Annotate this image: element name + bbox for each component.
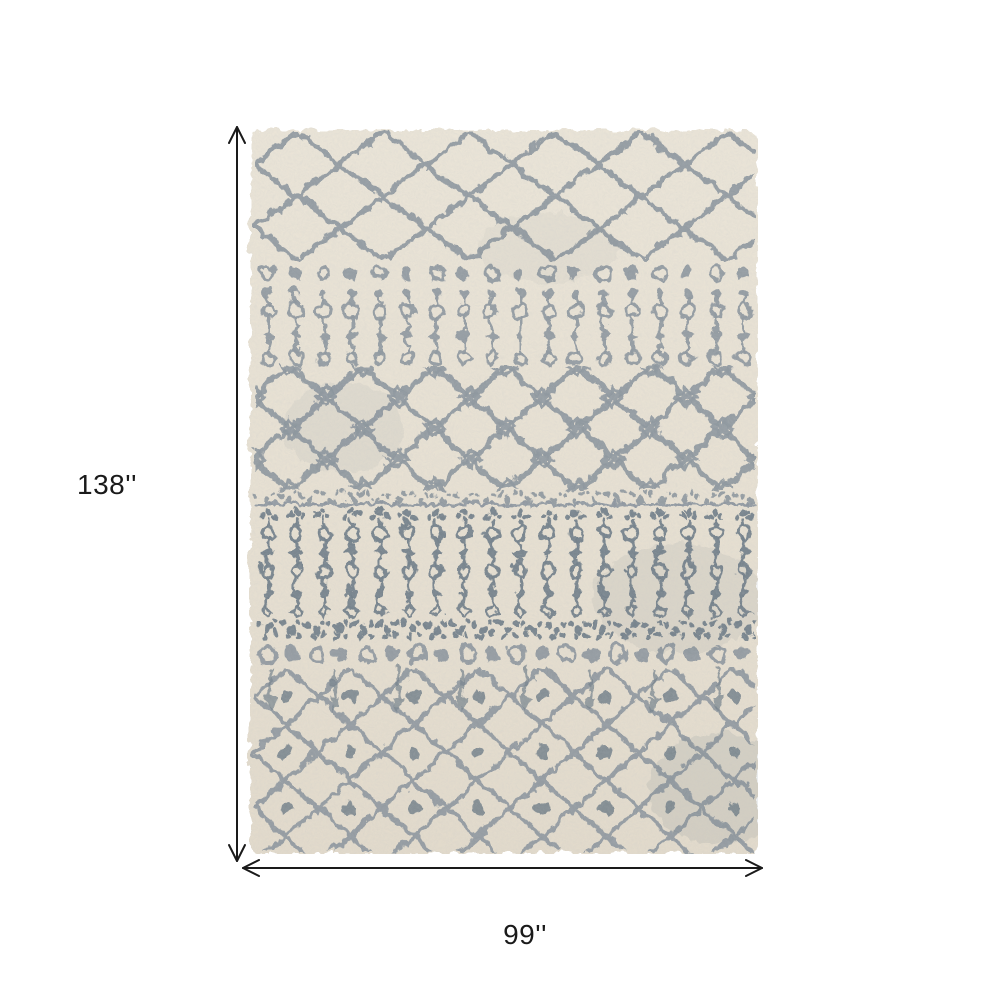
product-dimension-canvas: 138'' 99'' (0, 0, 1000, 1000)
rug-product-image (246, 126, 758, 854)
width-dimension-arrow-icon (234, 854, 778, 884)
rug-artwork-group (248, 128, 758, 852)
width-dimension-label: 99'' (480, 918, 570, 952)
shag-texture-overlay (248, 128, 756, 852)
height-dimension-arrow-icon (222, 118, 252, 868)
height-dimension-label: 138'' (67, 468, 147, 502)
